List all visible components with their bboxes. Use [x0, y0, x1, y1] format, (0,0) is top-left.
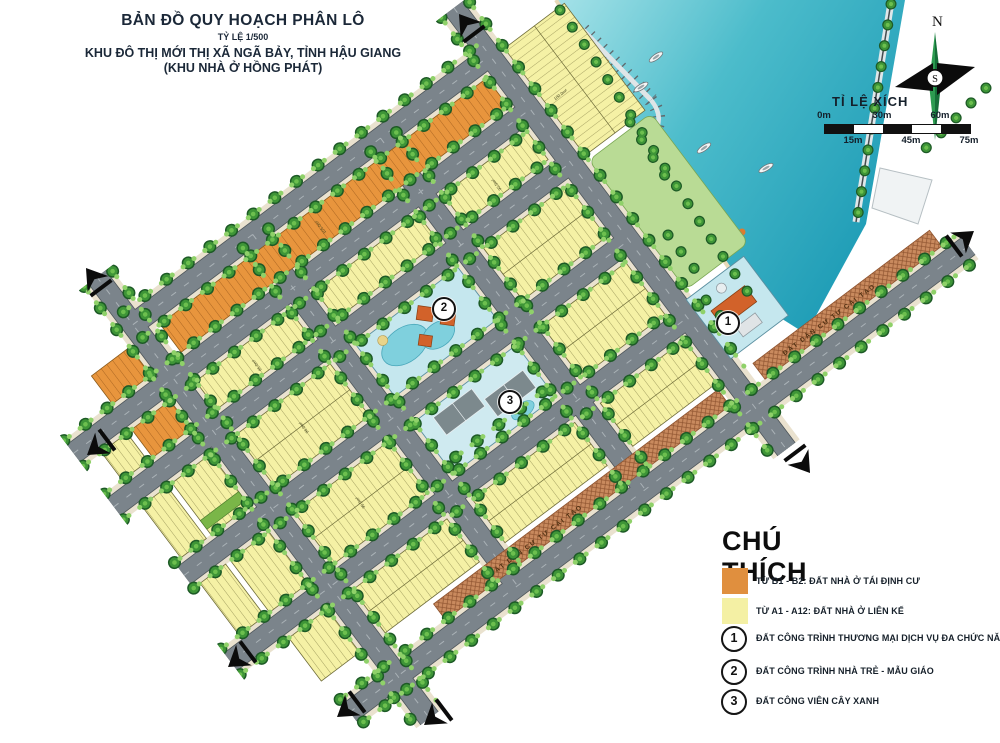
map-subtitle: KHU ĐÔ THỊ MỚI THỊ XÃ NGÃ BẢY, TỈNH HẬU …: [58, 46, 428, 60]
map-title: BẢN ĐỒ QUY HOẠCH PHÂN LÔ: [58, 12, 428, 30]
scale-bar-title: TỈ LỆ XÍCH: [832, 94, 908, 109]
legend-item-label: ĐẤT CÔNG TRÌNH NHÀ TRẺ - MẪU GIÁO: [756, 666, 934, 676]
legend-item-label: ĐẤT CÔNG TRÌNH THƯƠNG MẠI DỊCH VỤ ĐA CHỨ…: [756, 633, 1000, 643]
legend-circle-2: 2: [721, 659, 747, 685]
compass-north-label: N: [932, 14, 943, 30]
scale-label: 60m: [930, 110, 949, 121]
legend-item-label: TỪ A1 - A12: ĐẤT NHÀ Ở LIÊN KẾ: [756, 606, 904, 616]
map-subtitle-2: (KHU NHÀ Ở HỒNG PHÁT): [58, 61, 428, 75]
legend-circle-3: 3: [721, 689, 747, 715]
scale-label: 45m: [901, 135, 920, 146]
map-title-block: BẢN ĐỒ QUY HOẠCH PHÂN LÔ TỶ LỆ 1/500 KHU…: [58, 12, 428, 75]
scale-label: 15m: [843, 135, 862, 146]
scale-label: 0m: [817, 110, 831, 121]
legend-circle-1: 1: [721, 626, 747, 652]
scale-label: 30m: [872, 110, 891, 121]
legend-item-label: TỪ B1 - B2: ĐẤT NHÀ Ở TÁI ĐỊNH CƯ: [756, 576, 920, 586]
dock: [872, 168, 932, 224]
scale-label: 75m: [959, 135, 978, 146]
map-scale-note: TỶ LỆ 1/500: [58, 32, 428, 42]
legend-item-label: ĐẤT CÔNG VIÊN CÂY XANH: [756, 696, 879, 706]
scale-bar: TỈ LỆ XÍCH 0m 30m 60m 15m 45m 75m: [820, 94, 990, 150]
school-building: [418, 334, 432, 347]
road-arrow-icon: [783, 444, 820, 481]
scale-bar-segments: [824, 124, 971, 134]
legend-swatch-yellow: [722, 598, 748, 624]
compass-center-glyph: S: [932, 74, 938, 85]
map-marker-3: 3: [498, 390, 522, 414]
plan-map-page: ĐẤT DÂN CƯ TỰ CẢI TẠO ĐẤT DÂN CƯ TỰ CẢI …: [0, 0, 1000, 743]
map-marker-1: 1: [716, 311, 740, 335]
legend-swatch-orange: [722, 568, 748, 594]
map-marker-2: 2: [432, 297, 456, 321]
